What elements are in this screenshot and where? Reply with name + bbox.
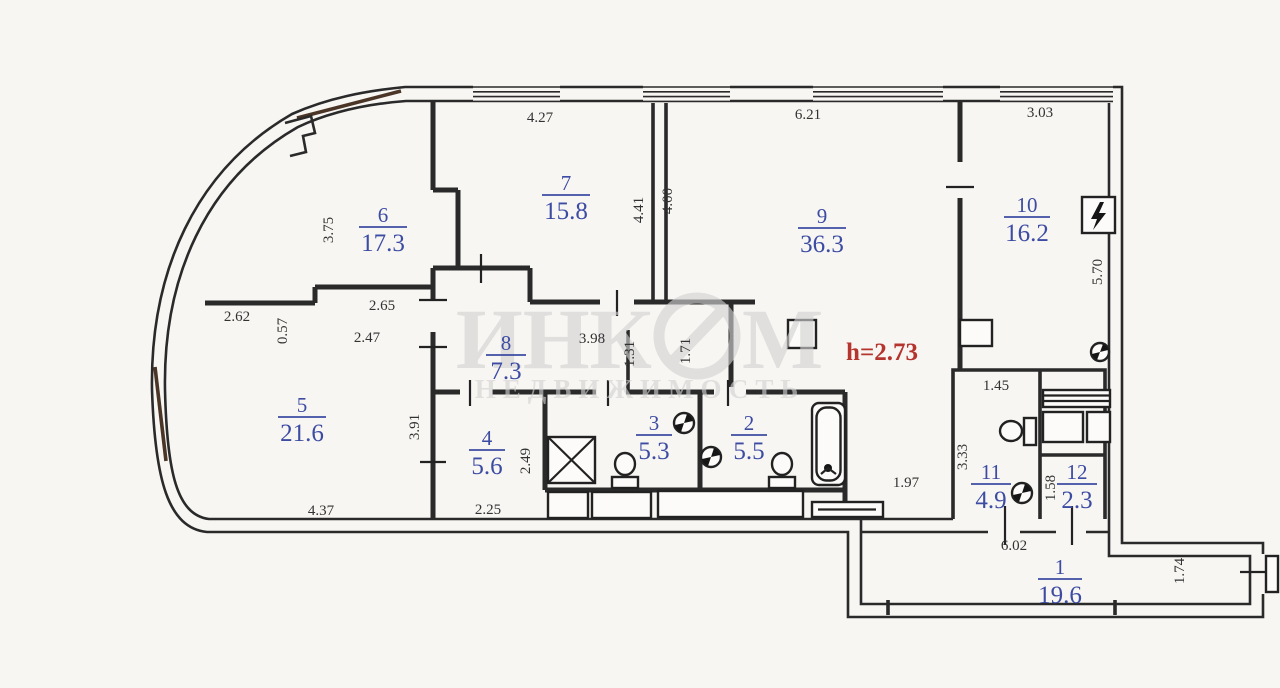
dim-room10-right: 5.70 <box>1090 259 1106 285</box>
room-5-number: 5 <box>297 393 308 417</box>
room-10-number: 10 <box>1017 193 1038 217</box>
closet <box>548 492 588 518</box>
dim-room1-right: 1.74 <box>1172 557 1188 584</box>
floor-plan-canvas: ИНК М НЕДВИЖИМОСТЬ 1 19.6 2 5.5 3 5.3 4 … <box>0 0 1280 688</box>
watermark-brand-left: ИНК <box>456 291 652 387</box>
toilet-icon <box>769 453 795 488</box>
room-12-number: 12 <box>1067 460 1088 484</box>
electric-panel-icon <box>1082 197 1115 233</box>
room-8-number: 8 <box>501 331 512 355</box>
bathtub-icon <box>812 403 845 485</box>
balcony-door <box>1266 556 1278 592</box>
room-11-number: 11 <box>981 460 1001 484</box>
toilet-icon <box>612 453 638 488</box>
room-7-number: 7 <box>561 171 572 195</box>
room-3-number: 3 <box>649 411 660 435</box>
dim-wall-247: 2.47 <box>354 330 381 346</box>
vent-shaft-icon <box>548 437 595 483</box>
dim-room11-top: 1.45 <box>983 378 1009 394</box>
dim-room1-top: 6.02 <box>1001 538 1027 554</box>
closet <box>658 491 803 517</box>
room-4-area: 5.6 <box>471 453 502 480</box>
radiator <box>812 502 883 517</box>
closet <box>592 492 651 518</box>
watermark-brand-right: М <box>742 291 823 387</box>
dim-room5-right: 3.91 <box>407 414 423 440</box>
room-2-area: 5.5 <box>733 438 764 465</box>
dim-top-2: 6.21 <box>795 107 821 123</box>
dim-hall-131: 1.31 <box>622 341 638 367</box>
ceiling-height-label: h=2.73 <box>846 339 918 366</box>
watermark-subtitle: НЕДВИЖИМОСТЬ <box>475 374 805 404</box>
dim-room6-left: 3.75 <box>321 217 337 243</box>
dim-room4-right: 2.49 <box>518 448 534 474</box>
room-12-area: 2.3 <box>1061 487 1092 514</box>
room-7-area: 15.8 <box>544 198 588 225</box>
dim-room7-right: 4.41 <box>631 197 647 223</box>
dim-top-3: 3.03 <box>1027 105 1053 121</box>
shelving <box>1043 390 1110 442</box>
dim-wall-057: 0.57 <box>275 317 291 344</box>
dim-room11-left: 3.33 <box>955 444 971 470</box>
room-8-area: 7.3 <box>490 358 521 385</box>
dim-wall-262: 2.62 <box>224 309 250 325</box>
room-9-number: 9 <box>817 204 828 228</box>
dim-room9-left: 4.00 <box>660 188 676 214</box>
room-4-number: 4 <box>482 426 493 450</box>
fan-icon <box>1091 343 1109 361</box>
room-9-area: 36.3 <box>800 231 844 258</box>
dim-hall-171: 1.71 <box>678 338 694 364</box>
duct-box <box>960 320 992 346</box>
room-11-area: 4.9 <box>975 487 1006 514</box>
dim-room12-left: 1.58 <box>1043 475 1059 501</box>
toilet-icon <box>1000 418 1036 445</box>
room-6-area: 17.3 <box>361 230 405 257</box>
fan-icon <box>674 413 694 433</box>
room-1-area: 19.6 <box>1038 582 1082 609</box>
dim-top-1: 4.27 <box>527 110 554 126</box>
room-10-area: 16.2 <box>1005 220 1049 247</box>
dim-room4-bottom: 2.25 <box>475 502 501 518</box>
room-3-area: 5.3 <box>638 438 669 465</box>
room-6-number: 6 <box>378 203 389 227</box>
fan-icon <box>701 447 721 467</box>
room-5-area: 21.6 <box>280 420 324 447</box>
fan-icon <box>1012 483 1032 503</box>
dim-hall-398: 3.98 <box>579 331 605 347</box>
room-1-number: 1 <box>1055 555 1066 579</box>
dim-corridor-197: 1.97 <box>893 475 920 491</box>
room-2-number: 2 <box>744 411 755 435</box>
dim-room5-bottom: 4.37 <box>308 503 335 519</box>
dim-wall-265: 2.65 <box>369 298 395 314</box>
